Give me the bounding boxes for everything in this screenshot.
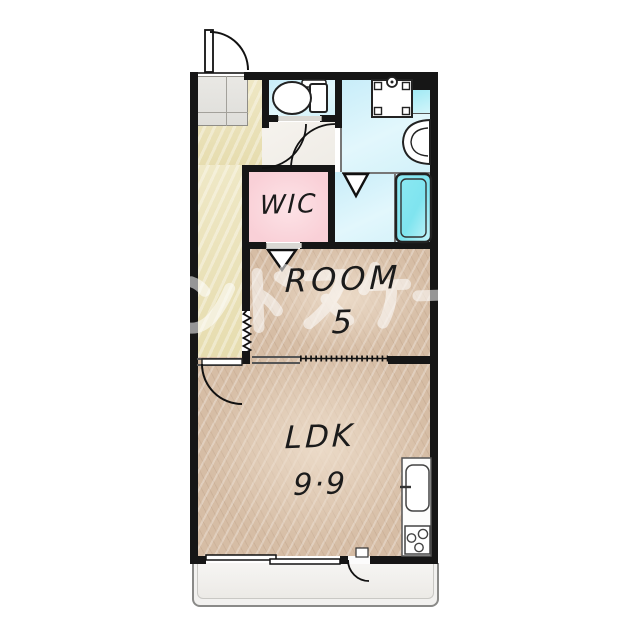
floorplan: WIC ROOM 5 LDK 9·9 [0,0,640,640]
toilet-icon [273,80,327,114]
bathtub-icon [396,174,431,242]
bath-door-triangle-icon [344,174,368,196]
ldk-label: LDK [240,419,401,456]
bedroom-size: 5 [262,303,423,341]
wic-label: WIC [249,191,329,220]
wash-basin-icon [403,120,430,164]
toilet-door-icon [262,124,306,168]
hall-door-icon [202,359,242,404]
entrance-door-icon [205,30,248,72]
bedroom-label: ROOM [262,260,423,298]
ldk-size: 9·9 [240,467,401,503]
washroom-door-icon [291,124,335,168]
kitchen-icon [400,458,431,556]
accordion-door-icon [244,310,251,352]
washing-machine-pan-icon [372,77,412,117]
sliding-window-icon [206,555,340,564]
balcony-door-icon [348,548,370,581]
